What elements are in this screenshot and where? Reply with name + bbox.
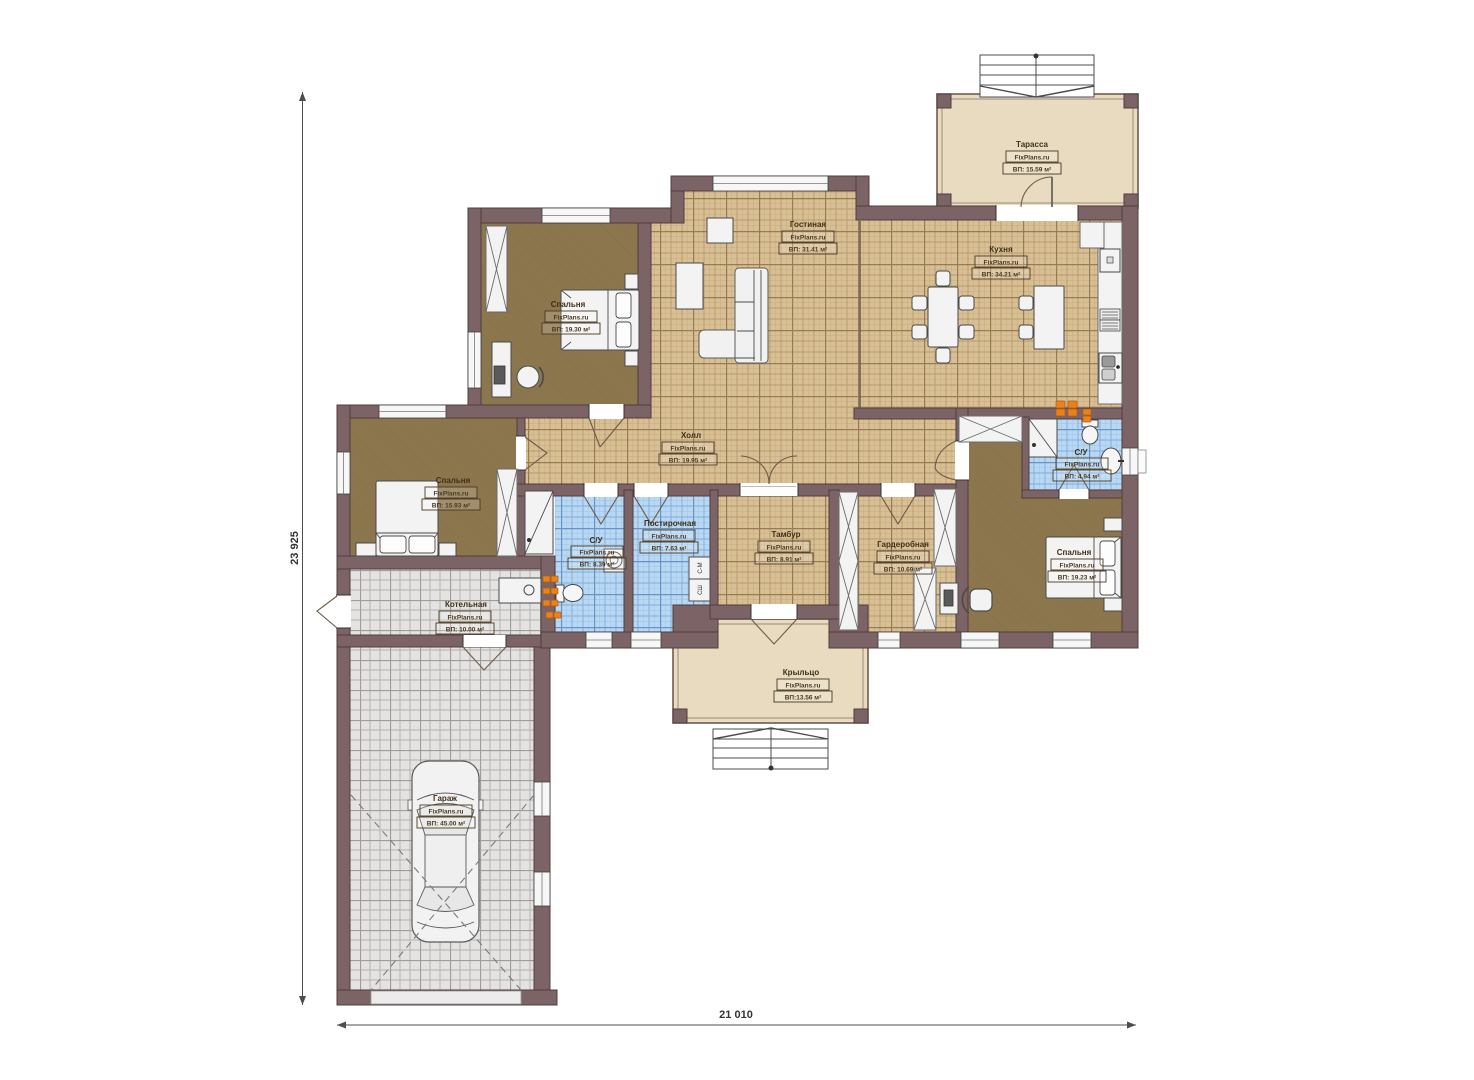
svg-text:FixPlans.ru: FixPlans.ru [766,545,801,552]
svg-text:Спальня: Спальня [1057,548,1092,557]
svg-text:23 925: 23 925 [289,531,301,565]
svg-text:ВП: 19.95 м²: ВП: 19.95 м² [669,458,708,465]
svg-text:FixPlans.ru: FixPlans.ru [553,315,588,322]
svg-text:ВП: 10.69 м²: ВП: 10.69 м² [884,567,923,574]
svg-text:Тамбур: Тамбур [771,530,800,539]
svg-text:ВП: 19.30 м²: ВП: 19.30 м² [552,327,591,334]
svg-text:ВП: 15.93 м²: ВП: 15.93 м² [432,503,471,510]
svg-text:Кухня: Кухня [989,245,1013,254]
svg-text:Постирочная: Постирочная [644,519,696,528]
svg-text:FixPlans.ru: FixPlans.ru [447,615,482,622]
svg-text:Спальня: Спальня [551,300,586,309]
svg-text:ВП: 19.23 м²: ВП: 19.23 м² [1058,575,1097,582]
svg-text:FixPlans.ru: FixPlans.ru [433,491,468,498]
svg-text:FixPlans.ru: FixPlans.ru [651,534,686,541]
svg-text:Крыльцо: Крыльцо [783,668,820,677]
svg-text:21 010: 21 010 [719,1009,753,1021]
svg-text:Тарасса: Тарасса [1016,140,1048,149]
svg-text:FixPlans.ru: FixPlans.ru [670,446,705,453]
svg-text:Гардеробная: Гардеробная [877,540,929,549]
svg-text:Котельная: Котельная [445,600,487,609]
svg-text:ВП: 8.91 м²: ВП: 8.91 м² [767,557,803,564]
svg-text:FixPlans.ru: FixPlans.ru [1064,462,1099,469]
svg-text:FixPlans.ru: FixPlans.ru [1059,563,1094,570]
svg-text:Гараж: Гараж [433,794,457,803]
svg-text:FixPlans.ru: FixPlans.ru [1014,155,1049,162]
svg-text:FixPlans.ru: FixPlans.ru [790,235,825,242]
svg-text:С-М: С-М [698,562,704,573]
svg-text:FixPlans.ru: FixPlans.ru [428,809,463,816]
svg-text:Гостиная: Гостиная [790,220,826,229]
svg-text:ВП: 45.00 м²: ВП: 45.00 м² [427,821,466,828]
svg-text:Спальня: Спальня [436,476,471,485]
svg-text:ВП: 15.59 м²: ВП: 15.59 м² [1013,167,1052,174]
svg-text:С/У: С/У [590,536,604,545]
svg-text:СШ: СШ [698,585,704,595]
svg-text:ВП: 8.39 м²: ВП: 8.39 м² [580,562,616,569]
svg-text:FixPlans.ru: FixPlans.ru [983,260,1018,267]
svg-text:ВП: 7.63 м²: ВП: 7.63 м² [652,546,688,553]
svg-text:FixPlans.ru: FixPlans.ru [579,550,614,557]
svg-text:ВП: 10.00 м²: ВП: 10.00 м² [446,627,485,634]
svg-text:ВП: 31.41 м²: ВП: 31.41 м² [789,247,828,254]
svg-text:Холл: Холл [681,431,701,440]
svg-text:FixPlans.ru: FixPlans.ru [785,683,820,690]
svg-text:ВП: 34.21 м²: ВП: 34.21 м² [982,272,1021,279]
svg-text:FixPlans.ru: FixPlans.ru [885,555,920,562]
svg-text:С/У: С/У [1075,448,1089,457]
svg-text:ВП: 4.94 м²: ВП: 4.94 м² [1065,474,1101,481]
svg-text:ВП:13.56 м²: ВП:13.56 м² [785,695,822,702]
